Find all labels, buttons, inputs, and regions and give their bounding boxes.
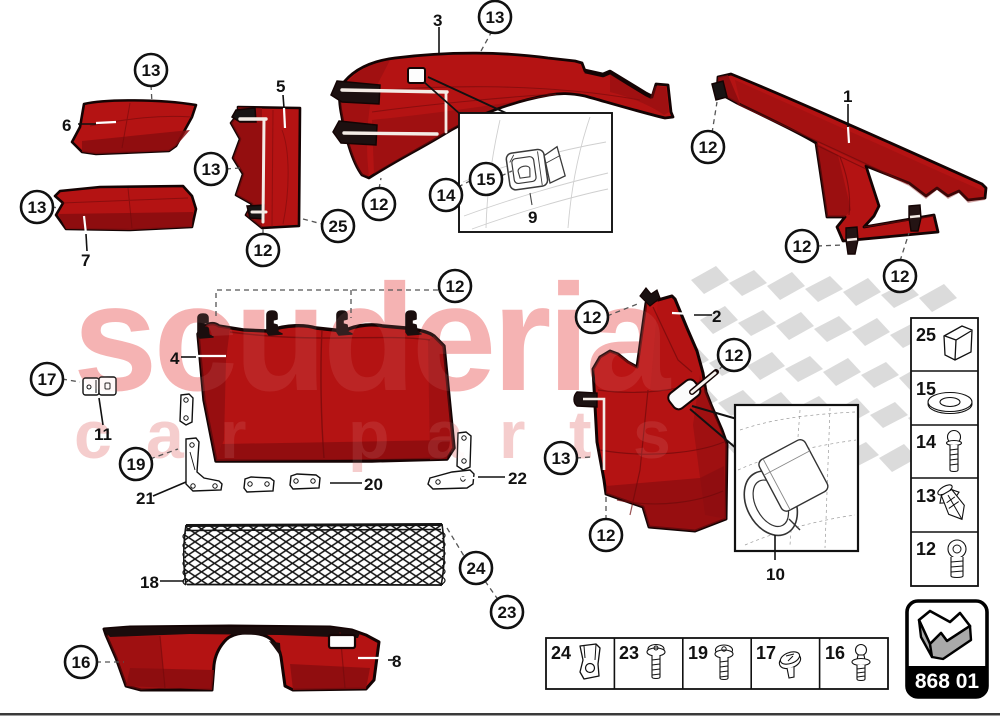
svg-text:3: 3 <box>433 11 442 30</box>
svg-text:16: 16 <box>72 653 91 672</box>
svg-text:12: 12 <box>793 237 812 256</box>
svg-text:12: 12 <box>891 267 910 286</box>
svg-text:13: 13 <box>28 198 47 217</box>
svg-text:4: 4 <box>170 349 180 368</box>
svg-text:13: 13 <box>202 160 221 179</box>
svg-text:18: 18 <box>140 573 159 592</box>
svg-text:13: 13 <box>916 486 936 506</box>
svg-text:19: 19 <box>127 455 146 474</box>
svg-text:8: 8 <box>392 652 401 671</box>
svg-text:24: 24 <box>467 559 486 578</box>
svg-text:13: 13 <box>486 8 505 27</box>
svg-text:23: 23 <box>498 603 517 622</box>
svg-text:23: 23 <box>619 643 639 663</box>
svg-text:13: 13 <box>552 449 571 468</box>
svg-text:12: 12 <box>370 195 389 214</box>
svg-text:10: 10 <box>766 565 785 584</box>
svg-text:12: 12 <box>725 346 744 365</box>
svg-text:17: 17 <box>38 370 57 389</box>
svg-text:2: 2 <box>712 307 721 326</box>
svg-text:5: 5 <box>276 77 285 96</box>
svg-text:25: 25 <box>329 217 348 236</box>
svg-text:1: 1 <box>843 87 852 106</box>
svg-text:7: 7 <box>81 251 90 270</box>
svg-text:11: 11 <box>94 425 112 444</box>
svg-text:21: 21 <box>136 489 155 508</box>
svg-text:13: 13 <box>142 61 161 80</box>
svg-text:14: 14 <box>437 186 456 205</box>
svg-text:12: 12 <box>254 241 273 260</box>
svg-text:20: 20 <box>364 475 383 494</box>
svg-text:12: 12 <box>583 308 602 327</box>
svg-text:17: 17 <box>756 643 776 663</box>
svg-text:12: 12 <box>597 526 616 545</box>
svg-text:12: 12 <box>446 277 465 296</box>
svg-text:a: a <box>426 397 465 473</box>
svg-text:24: 24 <box>551 643 571 663</box>
svg-text:14: 14 <box>916 432 936 452</box>
svg-text:9: 9 <box>528 208 537 227</box>
svg-text:16: 16 <box>825 643 845 663</box>
svg-text:r: r <box>499 397 525 473</box>
svg-text:6: 6 <box>62 116 71 135</box>
svg-text:p: p <box>348 397 390 473</box>
svg-text:22: 22 <box>508 469 527 488</box>
svg-text:12: 12 <box>699 138 718 157</box>
svg-text:25: 25 <box>916 325 936 345</box>
svg-text:r: r <box>220 397 246 473</box>
svg-text:15: 15 <box>477 170 496 189</box>
svg-text:868 01: 868 01 <box>915 670 980 693</box>
svg-text:s: s <box>633 397 671 473</box>
svg-text:19: 19 <box>688 643 708 663</box>
svg-text:12: 12 <box>916 539 936 559</box>
